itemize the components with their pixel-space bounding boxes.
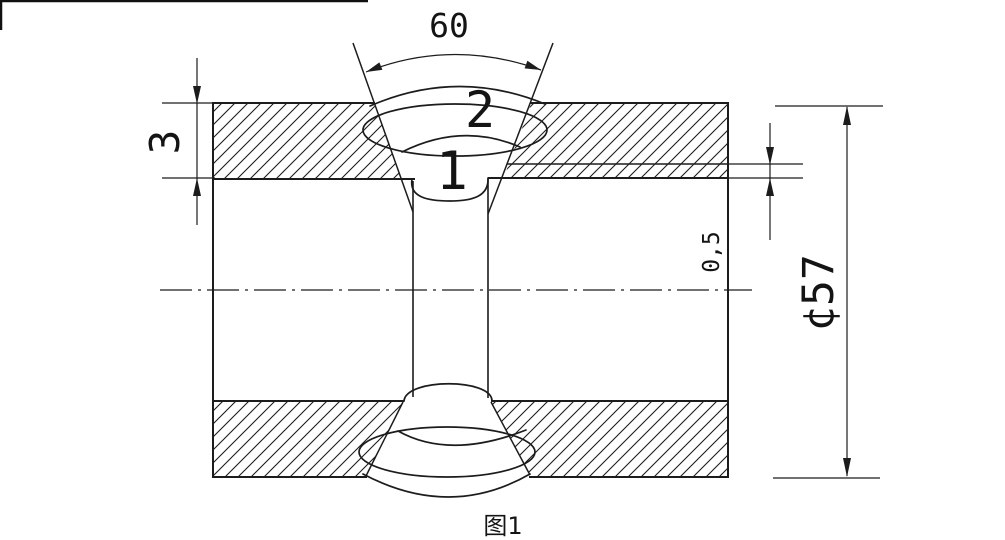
top-cap-bead-arc	[370, 86, 545, 106]
dim-3-arrow-bottom	[193, 178, 201, 196]
dim-05-arrow-top	[766, 147, 774, 165]
dim-57-arrow-bottom	[843, 458, 851, 477]
scan-edge-artifact	[0, 0, 368, 30]
weld-joint-technical-drawing: 3 60 0,5 ¢57 2 1 图1	[0, 0, 1005, 540]
inner-surface-top	[213, 178, 728, 179]
bore-weld-seam-lines	[413, 179, 488, 398]
bottom-root-bulge	[404, 384, 492, 401]
dim-60-arrow-right	[525, 61, 541, 70]
dim-3-arrow-top	[193, 86, 201, 104]
upper-right-wall-hatch	[504, 104, 728, 177]
dim-60-arc	[366, 54, 541, 72]
dim-outer-diameter-label: ¢57	[794, 254, 844, 332]
dim-groove-angle-label: 60	[429, 6, 469, 45]
dim-57-arrow-top	[843, 106, 851, 125]
dim-60-arrow-left	[366, 62, 382, 72]
pipe-butt-weld-section: 3 60 0,5 ¢57 2 1 图1	[0, 0, 1005, 540]
dim-wall-thickness-label: 3	[141, 130, 189, 155]
lower-left-wall-hatch	[213, 402, 403, 476]
dim-root-offset-label: 0,5	[699, 231, 725, 273]
lower-right-wall-hatch	[491, 402, 728, 476]
weld-pass-2-label: 2	[465, 81, 495, 139]
bottom-fusion-zone-ellipse	[359, 427, 535, 477]
dim-05-arrow-bottom	[766, 178, 774, 196]
figure-caption: 图1	[483, 512, 522, 540]
weld-pass-1-label: 1	[436, 141, 468, 202]
root-offset-extension-lines	[728, 164, 803, 178]
